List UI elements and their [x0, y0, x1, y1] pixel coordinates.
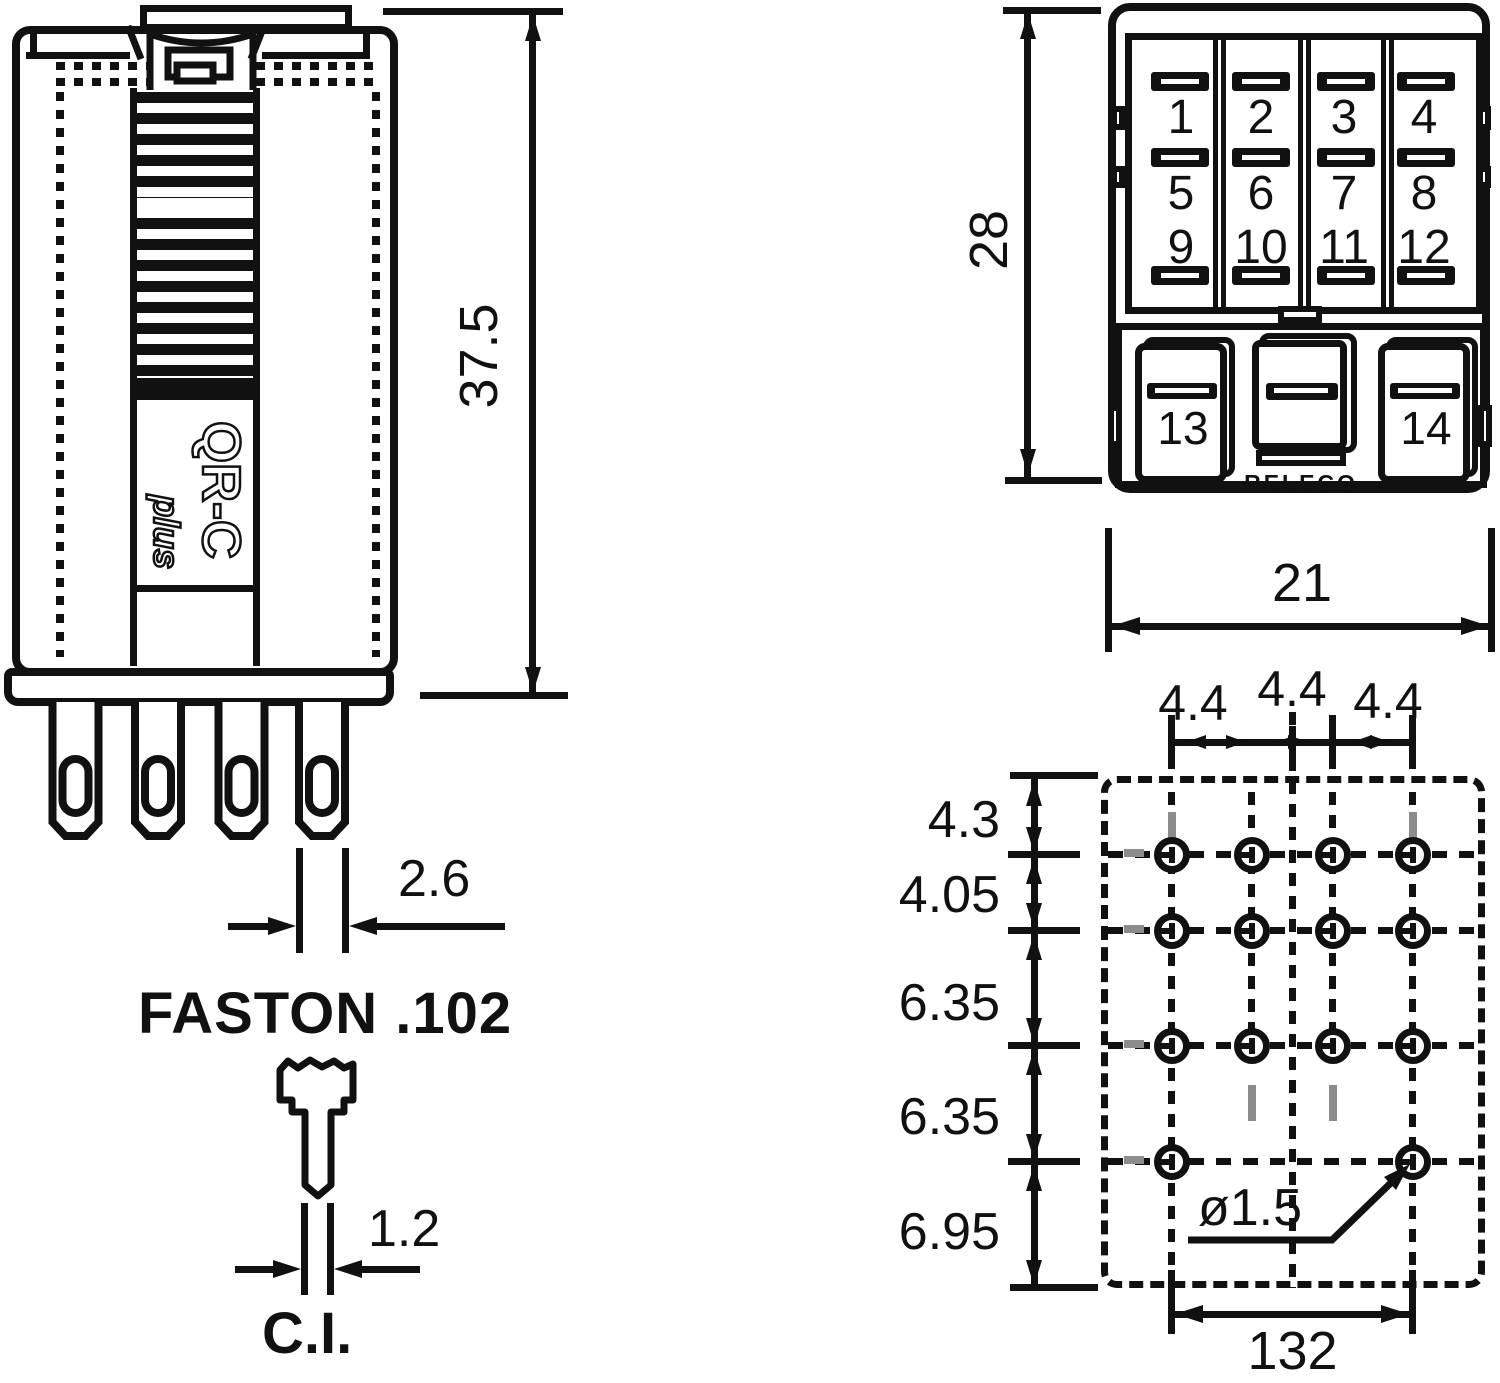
arrowhead: [1352, 735, 1372, 749]
arrowhead: [525, 15, 541, 41]
tick: [1008, 1158, 1080, 1165]
dimension-line: [377, 923, 505, 930]
hole-mark: [1159, 928, 1172, 934]
pin-hole: [1234, 837, 1270, 873]
terminal-number: 10: [1221, 224, 1301, 272]
slot-slit: [1327, 79, 1365, 84]
hole-mark: [1159, 852, 1172, 858]
extension-line: [1005, 477, 1102, 484]
slot-slit: [1155, 388, 1209, 393]
dim-overall-width: 132: [1230, 1324, 1355, 1378]
dimension-line: [529, 13, 536, 695]
terminal-slot: [1151, 72, 1209, 91]
dotted-outline-top-row1-left: [56, 62, 148, 70]
terminal-number: 12: [1384, 224, 1464, 272]
terminal-slot: [1151, 148, 1209, 167]
ci-pin: [258, 1048, 378, 1208]
hidden-mark: [1409, 812, 1417, 838]
side-notch: [1477, 106, 1491, 130]
faston-pins: [40, 696, 360, 846]
arrowhead: [525, 667, 541, 693]
terminal-slot: [1266, 383, 1338, 400]
label-underline: [130, 585, 260, 592]
tick: [1008, 927, 1080, 934]
strip-black-bar: [130, 378, 260, 400]
slot-slit: [1407, 155, 1445, 160]
dim-base-height: 28: [962, 210, 1016, 270]
dim-terminal-width: 2.6: [398, 853, 470, 905]
terminal-slot: [1397, 72, 1455, 91]
extension-line: [1003, 7, 1101, 14]
slot-slit: [1274, 388, 1328, 393]
cap-edge-left: [30, 30, 37, 56]
model-variant-label: plus: [148, 495, 184, 569]
arrowhead: [1026, 858, 1042, 884]
extension-line: [342, 848, 349, 953]
dim-col-spacing: 4.4: [1247, 664, 1337, 714]
pin-hole: [1315, 1028, 1351, 1064]
hidden-mark: [1124, 1040, 1144, 1048]
terminal-slot: [1390, 383, 1460, 399]
hidden-mark: [1124, 849, 1144, 857]
hidden-mark: [1124, 925, 1144, 933]
rib-seam: [137, 198, 253, 210]
dim-base-width: 21: [1262, 556, 1342, 610]
arrowhead: [1381, 1305, 1409, 1323]
pin-hole: [1315, 837, 1351, 873]
hidden-mark: [1168, 812, 1176, 838]
dim-col-spacing: 4.4: [1148, 678, 1238, 728]
terminal-slot: [1317, 72, 1375, 91]
arrowhead: [1026, 1165, 1042, 1191]
extension-line: [383, 8, 563, 15]
arrowhead: [1020, 13, 1036, 39]
dim-ci-width: 1.2: [368, 1203, 440, 1255]
hole-mark: [1159, 1159, 1172, 1165]
hole-mark: [1400, 852, 1413, 858]
arrowhead: [1026, 1049, 1042, 1075]
terminal-slot: [1397, 148, 1455, 167]
coil-terminal-number: 14: [1389, 405, 1463, 451]
leader-line: [1180, 1150, 1430, 1250]
extension-line: [420, 692, 568, 699]
slot-slit: [1327, 273, 1365, 278]
hole-mark: [1239, 928, 1252, 934]
terminal-number: 6: [1221, 170, 1301, 218]
pin-hole: [1395, 1028, 1431, 1064]
extension-line: [327, 1203, 334, 1295]
terminal-number: 2: [1221, 94, 1301, 142]
slot-slit: [1407, 79, 1445, 84]
slot-slit: [1161, 79, 1199, 84]
hidden-mark: [1329, 1085, 1337, 1121]
terminal-slot: [1232, 266, 1290, 285]
terminal-number: 11: [1304, 224, 1384, 272]
arrowhead: [1026, 1260, 1042, 1286]
slot-slit: [1161, 273, 1199, 278]
terminal-type-label: FASTON .102: [138, 985, 512, 1043]
hole-mark: [1159, 1043, 1172, 1049]
dim-col-spacing: 4.4: [1343, 676, 1433, 726]
tick: [1008, 1042, 1080, 1049]
extension-line: [1105, 528, 1112, 652]
dim-row-spacing: 6.35: [855, 977, 1000, 1029]
hole-mark: [1239, 1043, 1252, 1049]
hidden-mark: [1248, 1085, 1256, 1121]
strip-border-right: [253, 88, 260, 666]
terminal-number: 8: [1384, 170, 1464, 218]
arrowhead: [1112, 617, 1140, 635]
arrowhead: [1026, 1018, 1042, 1044]
terminal-slot: [1317, 266, 1375, 285]
terminal-number: 5: [1141, 170, 1221, 218]
arrowhead: [1186, 735, 1206, 749]
terminal-number: 7: [1304, 170, 1384, 218]
hole-mark: [1320, 852, 1333, 858]
model-label: QR-C: [194, 421, 248, 559]
arrowhead: [1461, 617, 1489, 635]
dim-row-spacing: 6.95: [855, 1206, 1000, 1258]
arrowhead: [1026, 780, 1042, 806]
arrowhead: [1026, 827, 1042, 853]
dimension-line: [235, 1266, 275, 1273]
dim-row-spacing: 4.3: [855, 794, 1000, 846]
dotted-outline-top-row2-right: [256, 78, 376, 86]
tick: [1168, 1270, 1175, 1334]
slot-slit: [1242, 273, 1280, 278]
slot-slit: [1327, 155, 1365, 160]
hole-mark: [1400, 928, 1413, 934]
arrowhead: [349, 917, 377, 935]
arrowhead: [1026, 1134, 1042, 1160]
dimension-line: [1112, 623, 1489, 630]
arrowhead: [1026, 903, 1042, 929]
extension-line: [296, 848, 303, 953]
terminal-slot: [1397, 266, 1455, 285]
arrowhead: [1370, 735, 1390, 749]
hole-mark: [1239, 852, 1252, 858]
slot-slit: [1398, 388, 1452, 393]
pin-hole: [1154, 913, 1190, 949]
extension-line: [1010, 1284, 1098, 1291]
terminal-number: 9: [1141, 224, 1221, 272]
dotted-outline-top-row2-left: [56, 78, 148, 86]
relay-dimension-drawing: QR-C plus 2.6 FASTON .102: [0, 0, 1500, 1383]
terminal-number: 3: [1304, 94, 1384, 142]
extension-line: [1488, 528, 1495, 652]
pin-hole: [1154, 1028, 1190, 1064]
hole-mark: [1320, 1043, 1333, 1049]
tick: [1409, 1270, 1416, 1334]
dim-row-spacing: 6.35: [855, 1091, 1000, 1143]
side-notch: [1111, 166, 1125, 188]
ribbed-grip: [137, 92, 253, 378]
latch-mechanism: [110, 20, 290, 98]
dim-height: 37.5: [452, 303, 506, 408]
arrowhead: [1175, 1305, 1203, 1323]
side-notch: [1477, 166, 1491, 188]
strip-border-left: [130, 88, 137, 666]
hidden-mark: [1124, 1156, 1144, 1164]
extension-line: [301, 1203, 308, 1295]
terminal-slot: [1147, 383, 1217, 399]
dimension-line: [1175, 1311, 1409, 1318]
center-block-foot: [1256, 450, 1346, 466]
extension-line: [1010, 772, 1098, 779]
slot-slit: [1407, 273, 1445, 278]
side-notch: [1478, 405, 1492, 447]
side-notch: [1108, 405, 1122, 447]
dimension-line: [362, 1266, 420, 1273]
side-notch: [1111, 106, 1125, 130]
terminal-slot: [1151, 266, 1209, 285]
dotted-outline-right: [372, 92, 380, 657]
terminal-slot: [1317, 148, 1375, 167]
terminal-number: 4: [1384, 94, 1464, 142]
brand-label: RELECO: [1236, 472, 1366, 495]
dotted-outline-top-row1-right: [256, 62, 376, 70]
pin-hole: [1395, 837, 1431, 873]
dotted-outline-left: [56, 92, 64, 657]
arrowhead: [268, 917, 296, 935]
slot-slit: [1242, 155, 1280, 160]
hole-mark: [1400, 1043, 1413, 1049]
dimension-line: [1024, 10, 1031, 480]
pin-hole: [1315, 913, 1351, 949]
terminal-slot: [1232, 72, 1290, 91]
cap-edge-right: [363, 30, 370, 56]
pin-hole: [1234, 1028, 1270, 1064]
terminal-number: 1: [1141, 94, 1221, 142]
arrowhead: [1226, 735, 1246, 749]
terminal-slot: [1232, 148, 1290, 167]
arrowhead: [273, 1260, 301, 1278]
slot-slit: [1242, 79, 1280, 84]
pin-hole: [1154, 837, 1190, 873]
hole-mark: [1320, 928, 1333, 934]
arrowhead: [1026, 934, 1042, 960]
slot-slit: [1161, 155, 1199, 160]
arrowhead: [1020, 449, 1036, 475]
coil-terminal-number: 13: [1146, 405, 1220, 451]
center-tab: [1278, 306, 1322, 323]
ci-label: C.I.: [262, 1305, 352, 1363]
tick: [1008, 851, 1080, 858]
arrowhead: [334, 1260, 362, 1278]
pin-hole: [1234, 913, 1270, 949]
dim-row-spacing: 4.05: [855, 869, 1000, 921]
pin-hole: [1395, 913, 1431, 949]
